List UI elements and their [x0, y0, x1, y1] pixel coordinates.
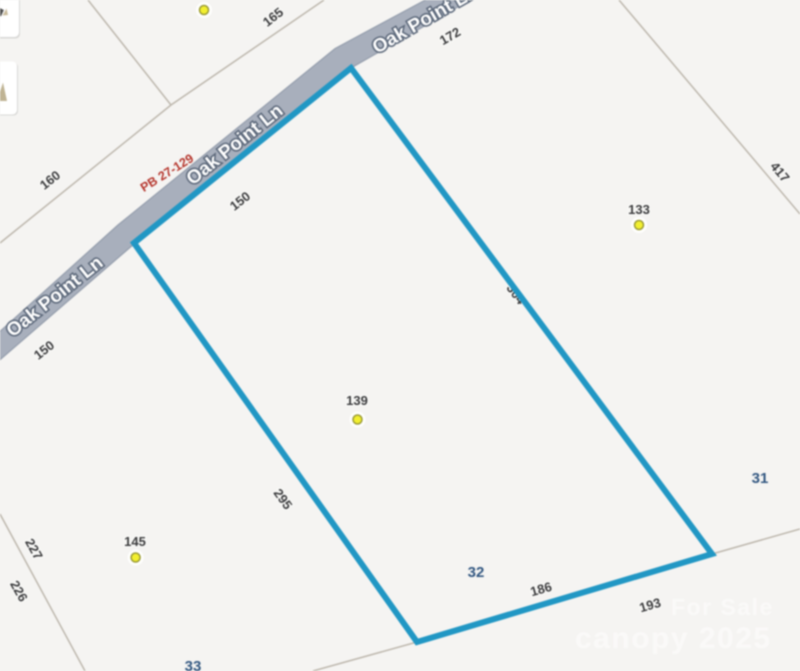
svg-text:33: 33	[185, 658, 202, 671]
svg-text:145: 145	[124, 534, 146, 549]
svg-text:139: 139	[346, 393, 368, 408]
svg-text:133: 133	[628, 202, 650, 217]
svg-text:For Sale: For Sale	[671, 594, 774, 620]
svg-text:31: 31	[752, 470, 769, 487]
svg-text:32: 32	[468, 564, 485, 581]
svg-text:canopy 2025: canopy 2025	[575, 622, 772, 655]
